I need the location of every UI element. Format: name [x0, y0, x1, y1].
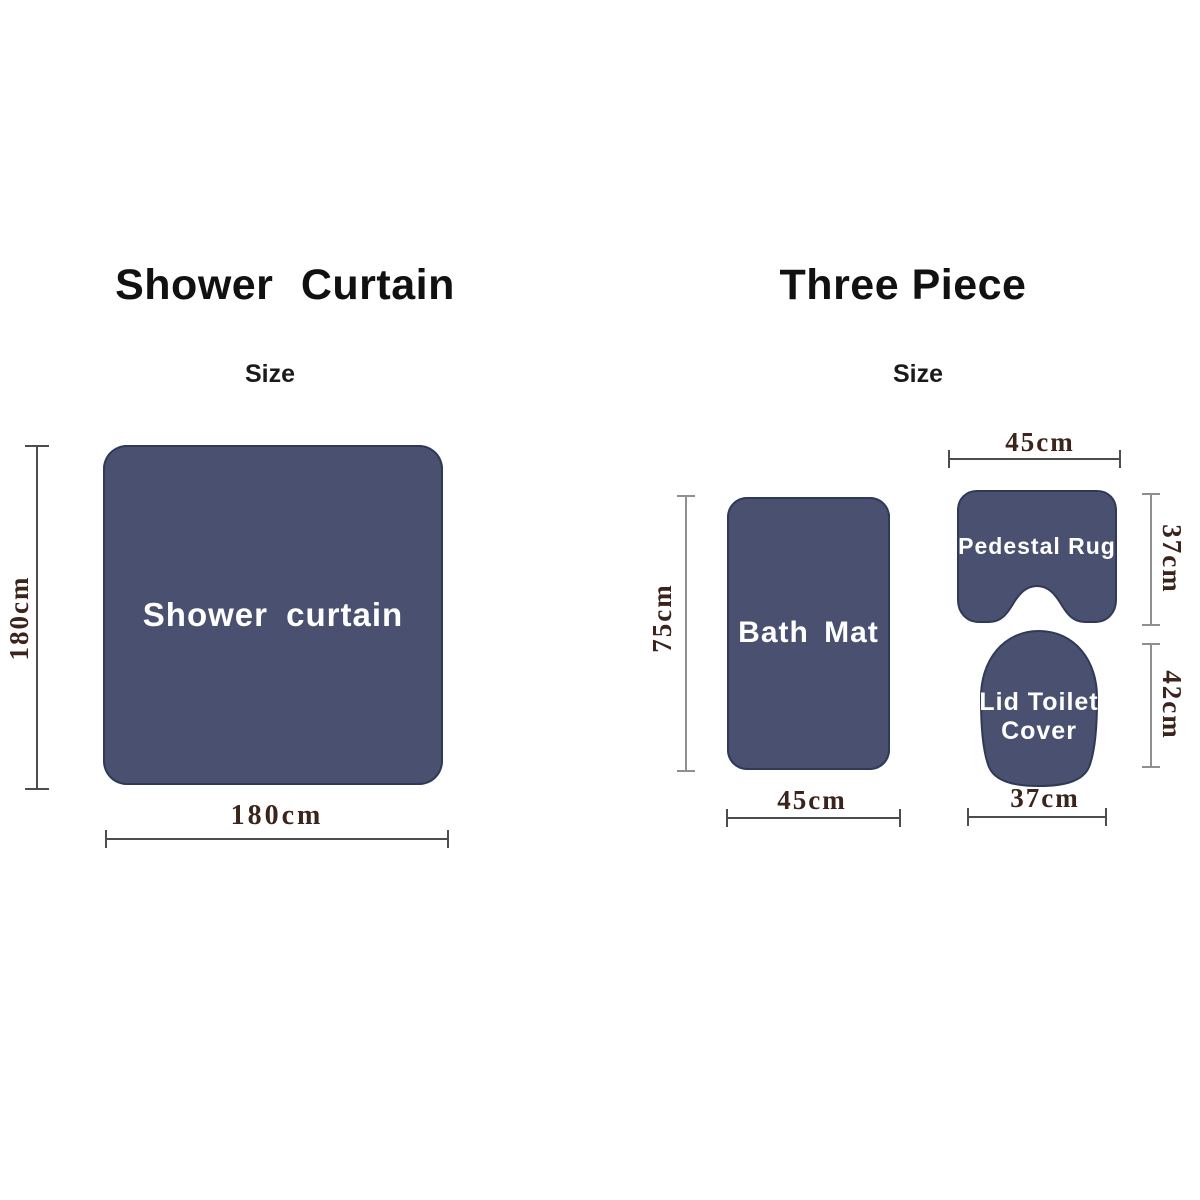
bath-mat-shape: Bath Mat — [727, 497, 890, 770]
shower-curtain-size-label: Size — [170, 360, 370, 389]
pedestal-rug-shape-label: Pedestal Rug — [957, 533, 1117, 559]
lid-toilet-cover-label-line1: Lid Toilet — [963, 688, 1115, 717]
bath-mat-shape-label: Bath Mat — [738, 616, 879, 651]
lid-toilet-cover-height-value: 42cm — [1157, 645, 1187, 765]
lid-toilet-cover-width-dimension-line — [967, 816, 1107, 818]
pedestal-rug-width-value: 45cm — [940, 427, 1140, 458]
pedestal-rug-height-dimension-line — [1150, 493, 1152, 626]
pedestal-rug-height-value: 37cm — [1157, 499, 1187, 619]
three-piece-size-label: Size — [818, 360, 1018, 389]
lid-toilet-cover-height-dimension-line — [1150, 643, 1152, 768]
size-chart-canvas: Shower Curtain Size Shower curtain 180cm… — [0, 0, 1200, 1200]
pedestal-rug-width-dimension-line — [948, 458, 1121, 460]
bath-mat-height-value: 75cm — [647, 558, 677, 678]
lid-toilet-cover-label-line2: Cover — [963, 717, 1115, 746]
shower-curtain-height-dimension-line — [36, 445, 38, 790]
shower-curtain-width-dimension-line — [105, 838, 449, 840]
shower-curtain-title: Shower Curtain — [85, 262, 485, 309]
shower-curtain-shape-label: Shower curtain — [143, 596, 403, 634]
bath-mat-height-dimension-line — [685, 495, 687, 772]
bath-mat-width-value: 45cm — [712, 785, 912, 816]
bath-mat-width-dimension-line — [726, 817, 901, 819]
shower-curtain-height-value: 180cm — [4, 558, 34, 678]
shower-curtain-width-value: 180cm — [177, 800, 377, 832]
shower-curtain-shape: Shower curtain — [103, 445, 443, 785]
lid-toilet-cover-width-value: 37cm — [945, 783, 1145, 814]
three-piece-title: Three Piece — [703, 262, 1103, 309]
lid-toilet-cover-shape-label: Lid Toilet Cover — [963, 688, 1115, 746]
